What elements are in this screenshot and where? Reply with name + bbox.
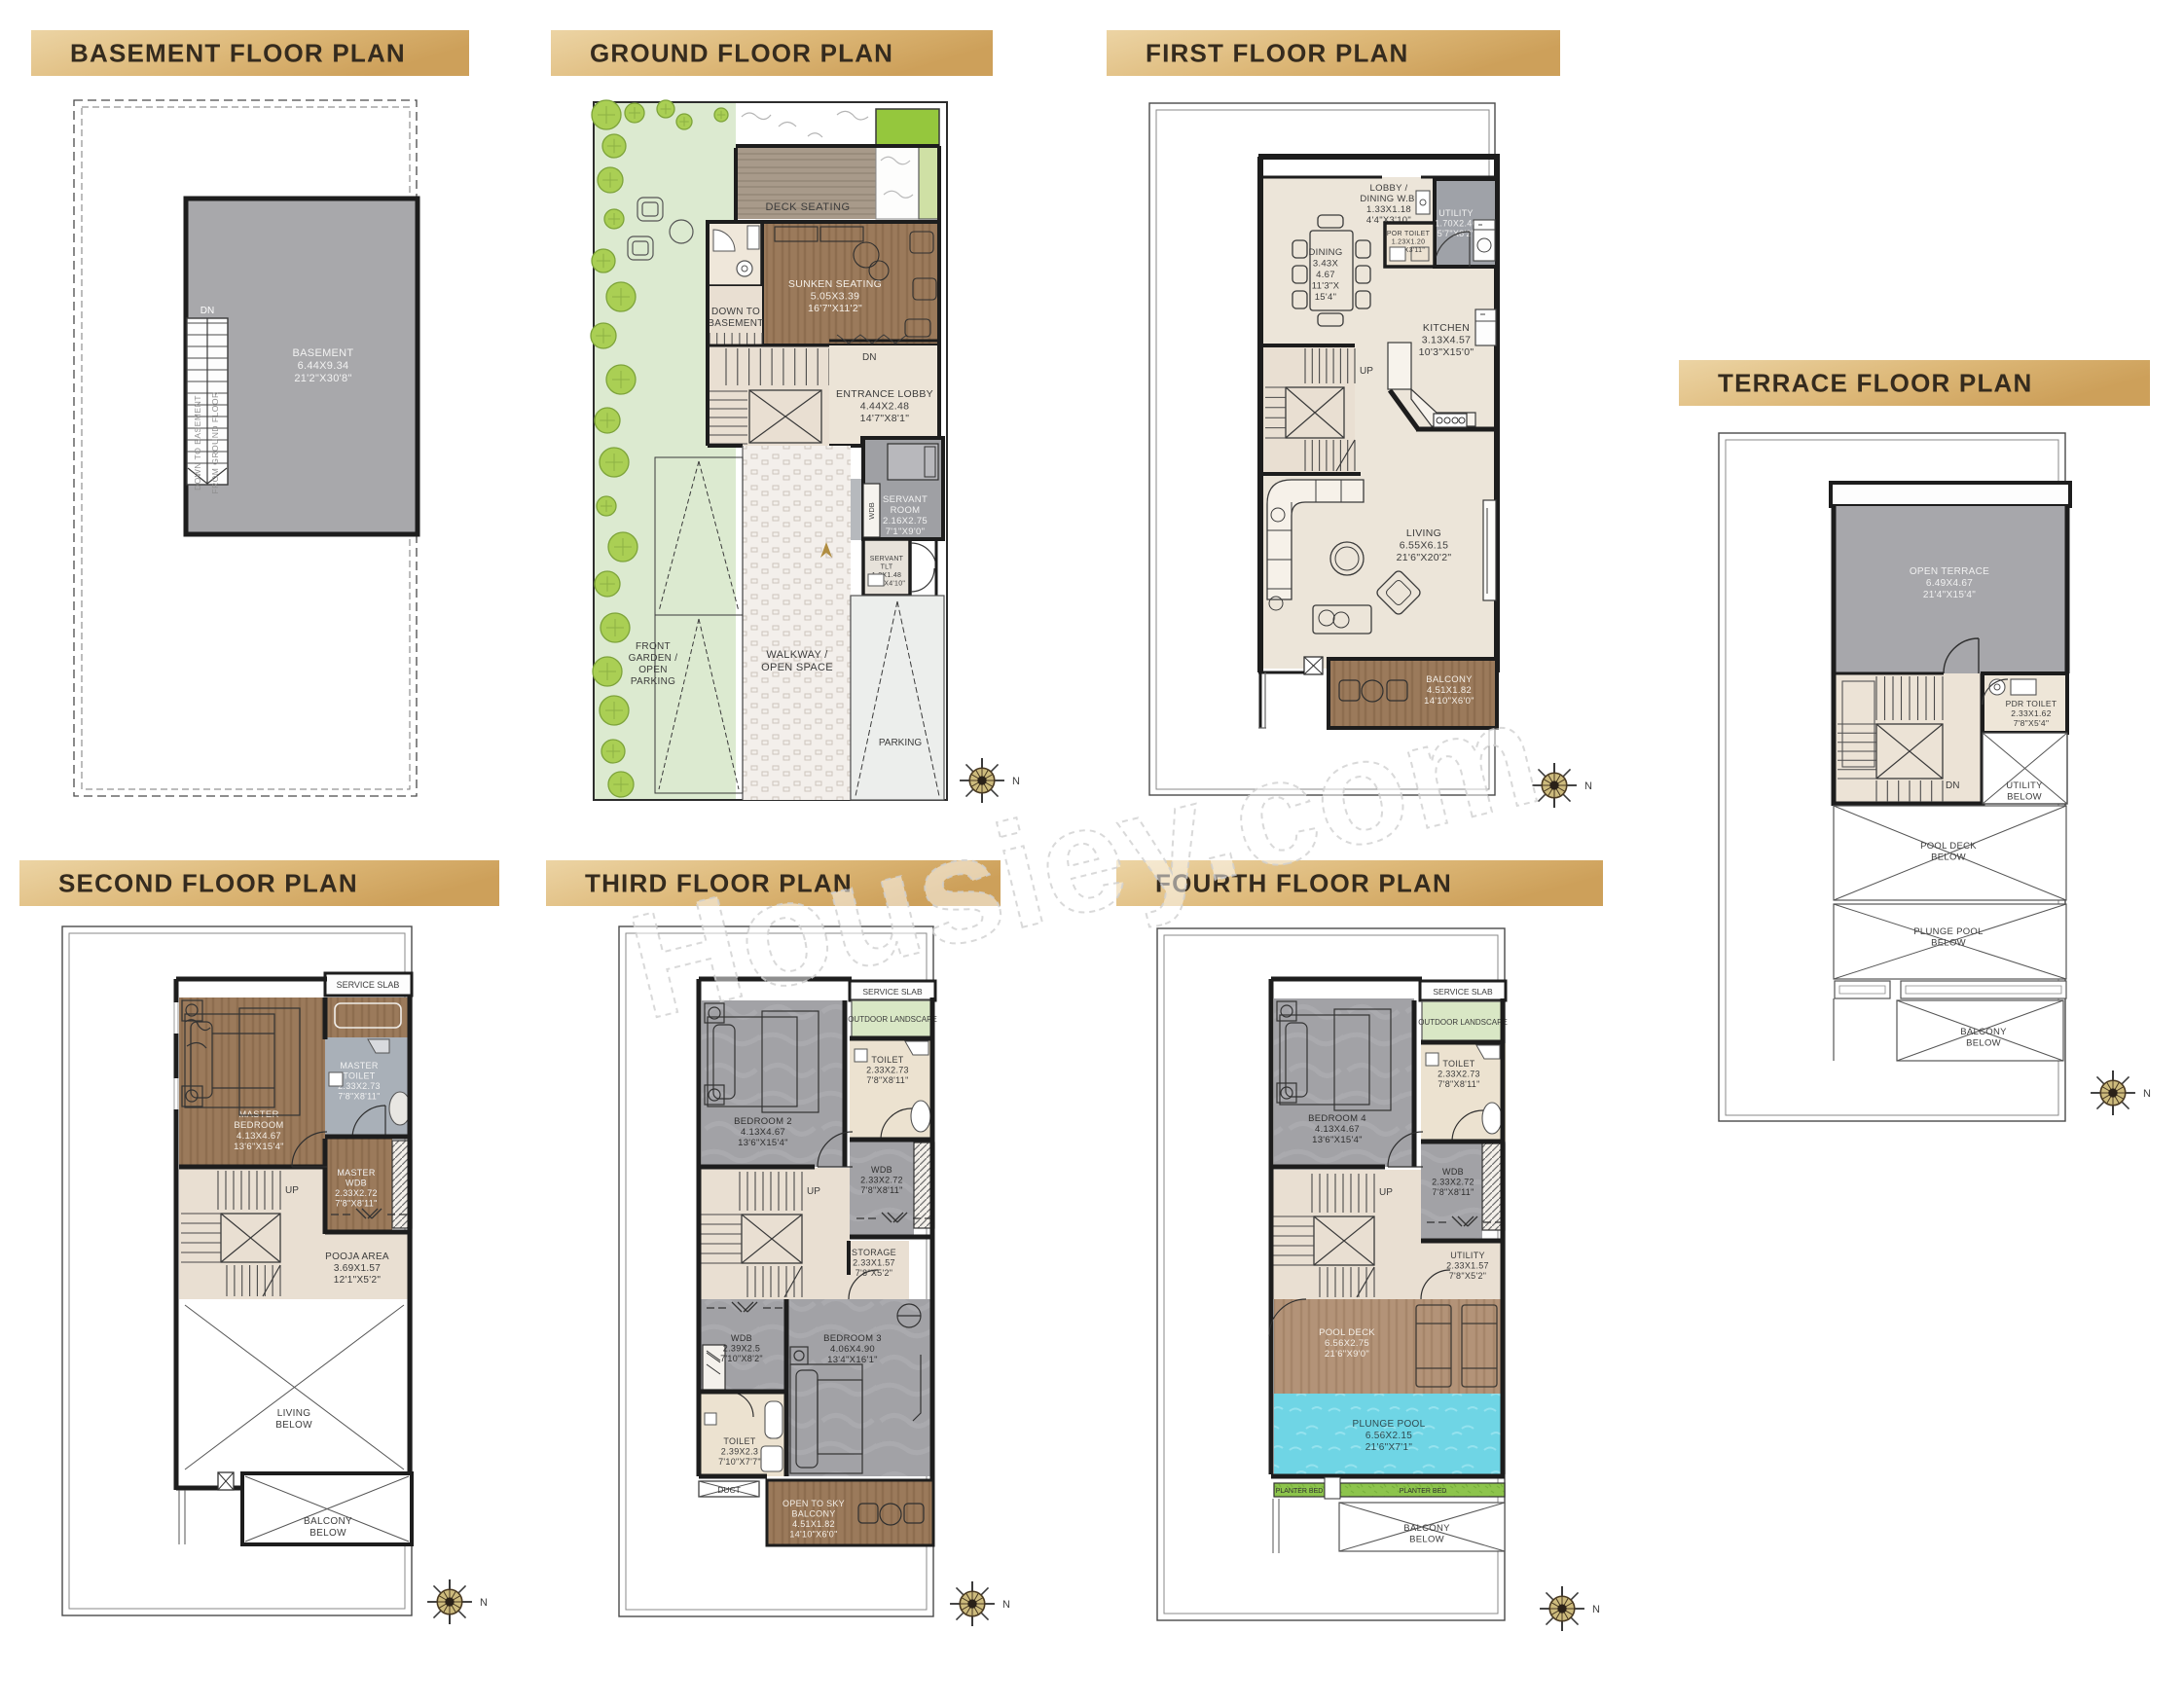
svg-text:TOILET2.33X2.737'8"X8'11": TOILET2.33X2.737'8"X8'11" (866, 1055, 909, 1085)
svg-text:WALKWAY /OPEN SPACE: WALKWAY /OPEN SPACE (761, 649, 833, 673)
svg-text:OUTDOOR LANDSCAPE: OUTDOOR LANDSCAPE (848, 1015, 937, 1024)
svg-text:POOL DECK6.56X2.7521'6"X9'0": POOL DECK6.56X2.7521'6"X9'0" (1319, 1327, 1375, 1360)
svg-text:TOILET2.39X2.37'10"X7'7": TOILET2.39X2.37'10"X7'7" (718, 1436, 761, 1467)
svg-text:N: N (2143, 1088, 2151, 1100)
svg-text:BASEMENT6.44X9.3421'2"X30'8": BASEMENT6.44X9.3421'2"X30'8" (293, 347, 354, 384)
svg-text:SERVANTROOM2.16X2.757'1"X9'0": SERVANTROOM2.16X2.757'1"X9'0" (883, 494, 928, 537)
svg-text:UTILITYBELOW: UTILITYBELOW (2006, 780, 2043, 803)
svg-text:BALCONYBELOW: BALCONYBELOW (1960, 1027, 2007, 1049)
svg-text:MASTERWDB2.33X2.727'8"X8'11": MASTERWDB2.33X2.727'8"X8'11" (335, 1168, 378, 1209)
svg-text:BALCONYBELOW: BALCONYBELOW (304, 1516, 352, 1539)
svg-text:DN: DN (862, 352, 876, 363)
svg-text:UP: UP (1379, 1187, 1393, 1198)
svg-text:DUCT: DUCT (717, 1485, 741, 1495)
svg-text:BALCONYBELOW: BALCONYBELOW (1403, 1523, 1450, 1545)
svg-text:PLANTER BED: PLANTER BED (1276, 1488, 1324, 1495)
svg-text:UTILITY2.33X1.577'8"X5'2": UTILITY2.33X1.577'8"X5'2" (1446, 1251, 1489, 1281)
svg-text:UP: UP (285, 1185, 299, 1196)
svg-text:GROUND FLOOR PLAN: GROUND FLOOR PLAN (590, 39, 893, 68)
svg-text:DN: DN (200, 306, 214, 316)
svg-text:FROM GROUND FLOOR: FROM GROUND FLOOR (210, 391, 220, 493)
svg-text:WDB: WDB (867, 502, 876, 520)
svg-text:DN: DN (1946, 780, 1959, 791)
svg-text:FIRST FLOOR PLAN: FIRST FLOOR PLAN (1146, 39, 1409, 68)
svg-text:BASEMENT FLOOR PLAN: BASEMENT FLOOR PLAN (70, 39, 406, 68)
svg-text:N: N (480, 1597, 488, 1609)
svg-text:TOILET2.33X2.737'8"X8'11": TOILET2.33X2.737'8"X8'11" (1438, 1059, 1480, 1089)
svg-text:N: N (1592, 1604, 1600, 1615)
svg-text:SERVICE SLAB: SERVICE SLAB (1433, 987, 1493, 997)
svg-text:N: N (1012, 776, 1020, 787)
svg-text:OUTDOOR LANDSCAPE: OUTDOOR LANDSCAPE (1418, 1018, 1508, 1027)
svg-text:UP: UP (807, 1186, 820, 1197)
svg-text:BEDROOM 44.13X4.6713'6"X15'4": BEDROOM 44.13X4.6713'6"X15'4" (1308, 1113, 1366, 1145)
svg-text:N: N (1002, 1599, 1010, 1611)
svg-text:N: N (1584, 780, 1592, 792)
svg-text:PLANTER BED: PLANTER BED (1400, 1488, 1447, 1495)
svg-text:TERRACE FLOOR PLAN: TERRACE FLOOR PLAN (1718, 369, 2032, 398)
svg-text:DOWN TOBASEMENT: DOWN TOBASEMENT (708, 307, 763, 329)
svg-text:KITCHEN3.13X4.5710'3"X15'0": KITCHEN3.13X4.5710'3"X15'0" (1419, 322, 1474, 358)
svg-text:STORAGE2.33X1.577'8"X5'2": STORAGE2.33X1.577'8"X5'2" (852, 1248, 896, 1278)
svg-text:UP: UP (1360, 366, 1373, 377)
svg-text:MASTERTOILET2.33X2.737'8"X8'11: MASTERTOILET2.33X2.737'8"X8'11" (338, 1061, 381, 1102)
svg-text:SECOND FLOOR PLAN: SECOND FLOOR PLAN (58, 869, 358, 898)
svg-text:DOWN TO BASEMENT: DOWN TO BASEMENT (193, 395, 202, 490)
svg-text:LIVINGBELOW: LIVINGBELOW (275, 1408, 312, 1431)
svg-text:POOJA AREA3.69X1.5712'1"X5'2": POOJA AREA3.69X1.5712'1"X5'2" (325, 1252, 389, 1286)
svg-text:PARKING: PARKING (879, 738, 922, 748)
svg-text:SERVICE SLAB: SERVICE SLAB (337, 980, 400, 990)
svg-text:BEDROOM 34.06X4.9013'4"X16'1": BEDROOM 34.06X4.9013'4"X16'1" (823, 1333, 882, 1365)
svg-text:BEDROOM 24.13X4.6713'6"X15'4": BEDROOM 24.13X4.6713'6"X15'4" (734, 1116, 792, 1148)
svg-text:DECK SEATING: DECK SEATING (765, 201, 850, 213)
